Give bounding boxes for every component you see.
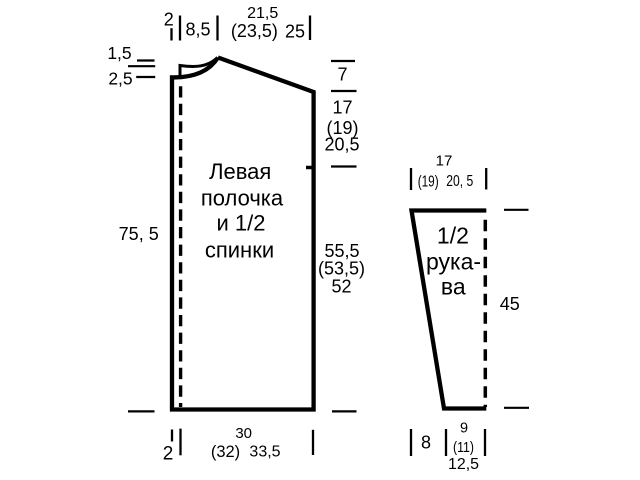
svg-text:45: 45 [500, 294, 520, 314]
svg-text:7: 7 [337, 65, 347, 85]
svg-text:(11): (11) [453, 439, 474, 456]
svg-text:и 1/2: и 1/2 [217, 211, 266, 236]
svg-text:8,5: 8,5 [185, 20, 210, 40]
svg-text:20, 5: 20, 5 [446, 173, 473, 190]
svg-text:8: 8 [421, 433, 431, 453]
svg-text:1,5: 1,5 [107, 43, 131, 63]
svg-text:(53,5): (53,5) [318, 259, 365, 279]
svg-text:33,5: 33,5 [249, 444, 280, 461]
svg-text:ва: ва [441, 274, 466, 300]
svg-text:17: 17 [332, 98, 352, 118]
svg-text:2: 2 [163, 444, 174, 465]
svg-text:(32): (32) [211, 443, 240, 461]
svg-text:12,5: 12,5 [448, 456, 479, 473]
svg-text:52: 52 [331, 277, 351, 297]
svg-text:2: 2 [164, 10, 174, 30]
svg-text:21,5: 21,5 [247, 5, 278, 22]
svg-text:75, 5: 75, 5 [119, 224, 159, 244]
svg-text:17: 17 [436, 152, 453, 169]
svg-text:Левая: Левая [209, 159, 271, 184]
svg-text:25: 25 [285, 22, 305, 42]
svg-text:2,5: 2,5 [108, 69, 132, 89]
svg-text:30: 30 [235, 425, 252, 442]
svg-text:спинки: спинки [205, 238, 274, 263]
svg-text:полочка: полочка [201, 186, 284, 211]
svg-text:9: 9 [460, 421, 468, 437]
svg-text:20,5: 20,5 [324, 135, 359, 155]
svg-text:рука-: рука- [426, 248, 481, 274]
svg-text:1/2: 1/2 [437, 222, 469, 248]
svg-text:(19): (19) [418, 173, 439, 190]
svg-text:(23,5): (23,5) [231, 21, 278, 41]
